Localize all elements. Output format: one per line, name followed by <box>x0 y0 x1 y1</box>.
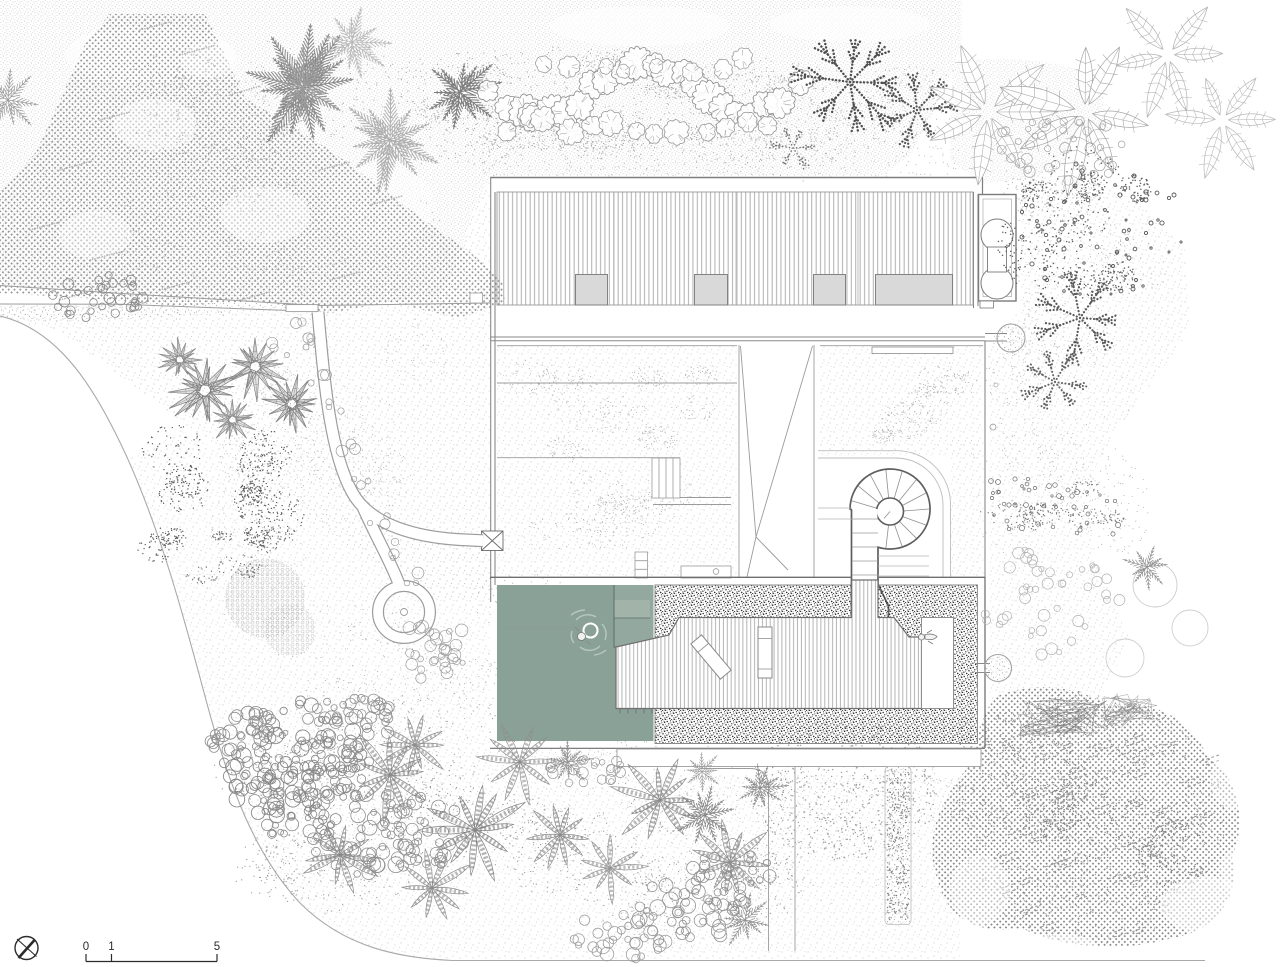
svg-text:1: 1 <box>108 941 114 953</box>
svg-text:5: 5 <box>214 941 220 953</box>
svg-text:0: 0 <box>83 941 89 953</box>
